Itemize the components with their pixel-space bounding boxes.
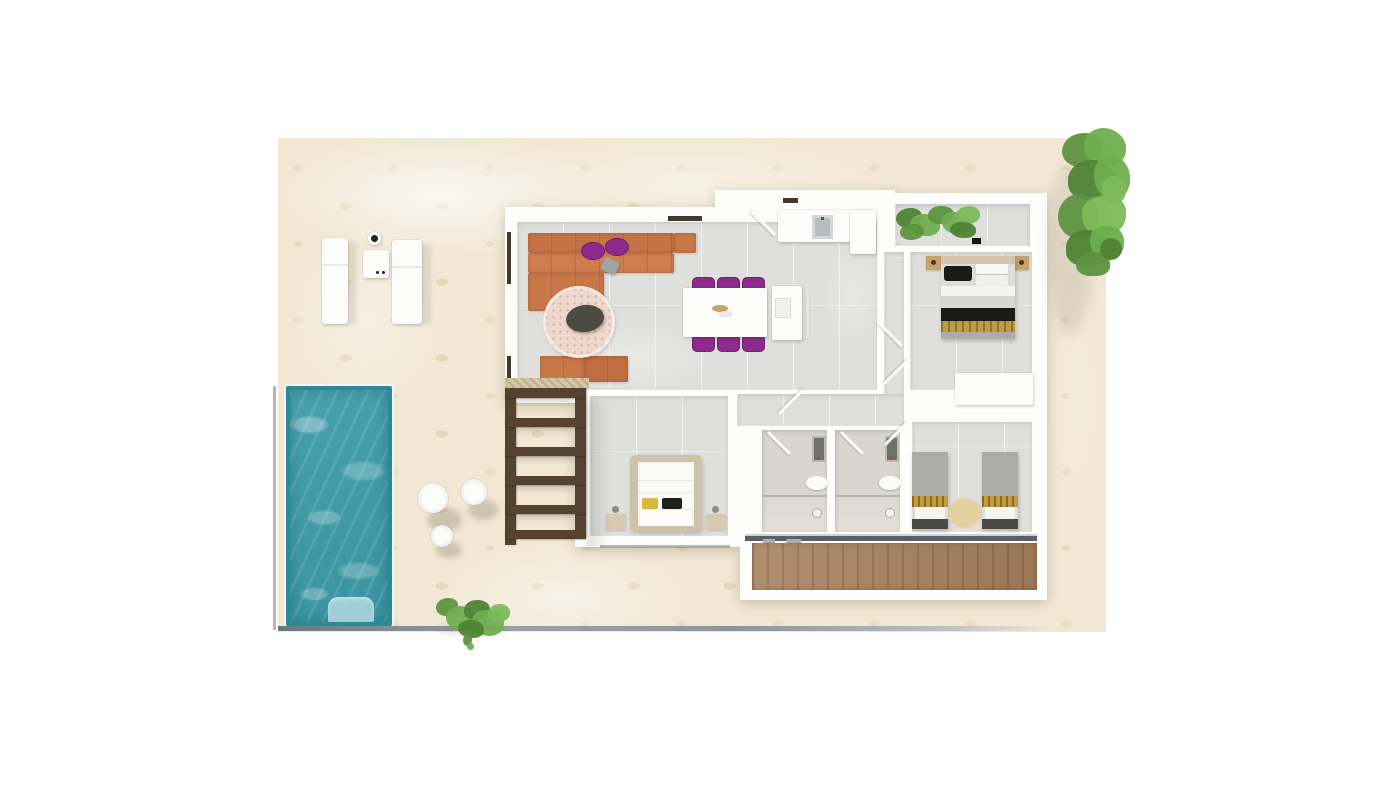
tree-foliage	[1100, 238, 1122, 260]
pergola-beam-right	[575, 388, 586, 538]
pergola-slat	[505, 447, 586, 456]
shower-drain	[813, 509, 821, 517]
rail-handle	[763, 539, 775, 543]
pergola-beam-left	[505, 388, 516, 545]
single-bed	[982, 452, 1018, 529]
toilet	[806, 476, 828, 490]
double-bed-master	[941, 256, 1015, 339]
rail-handle	[786, 539, 801, 543]
window-frame	[507, 356, 511, 378]
table-plate	[719, 311, 732, 317]
kitchen-sink	[812, 215, 833, 239]
pergola-slat	[505, 530, 586, 539]
boundary-fence	[278, 626, 1050, 631]
pergola-slat	[505, 418, 586, 427]
dining-table	[683, 288, 767, 337]
nightstand	[926, 256, 941, 270]
white-pillow	[976, 264, 1008, 274]
pergola-slat	[505, 388, 586, 398]
purple-cushion	[581, 242, 605, 260]
wardrobe	[955, 373, 1033, 405]
shower-glass	[762, 495, 827, 497]
purple-cushion	[605, 238, 629, 256]
vanity-mirror	[812, 436, 826, 462]
planter-plant	[950, 222, 976, 238]
black-pillow	[944, 266, 972, 281]
pergola-slat	[505, 505, 586, 514]
black-pillow	[662, 498, 682, 509]
gold-runner	[941, 321, 1015, 332]
garden-plant	[488, 604, 510, 622]
sofa-right-section	[674, 233, 696, 253]
black-runner	[941, 308, 1015, 321]
window-frame	[783, 198, 798, 203]
orange-bench	[584, 356, 628, 382]
nightstand	[1014, 256, 1029, 270]
stone-sill	[505, 378, 589, 388]
window-frame	[507, 232, 511, 284]
planter-spout	[972, 238, 981, 244]
island-shelf	[806, 291, 809, 338]
table-lamp	[712, 506, 719, 513]
bed-mattress	[638, 462, 694, 526]
pergola-slat	[505, 476, 586, 485]
shower-glass	[835, 495, 900, 497]
round-rug-twin	[948, 498, 982, 528]
window-frame	[668, 216, 702, 221]
yellow-pillow	[642, 498, 658, 509]
pergola-side-shadow	[586, 400, 610, 548]
wood-deck	[752, 543, 1037, 590]
single-bed	[912, 452, 948, 529]
floorplan-render	[0, 0, 1400, 788]
toilet	[879, 476, 901, 490]
nightstand	[706, 514, 726, 530]
house	[0, 0, 1400, 788]
door-track	[600, 545, 730, 548]
garden-plant-sprig	[467, 643, 474, 650]
kitchen-island	[772, 286, 802, 340]
white-pillow	[976, 275, 1008, 286]
pergola-slat-shadows	[516, 396, 574, 536]
hallway-floor-horizontal	[737, 394, 904, 426]
tree-foliage	[1102, 176, 1126, 204]
tall-cabinet	[850, 210, 876, 254]
interior-light	[818, 240, 888, 350]
shower-drain	[886, 509, 894, 517]
table-lamp	[612, 506, 619, 513]
